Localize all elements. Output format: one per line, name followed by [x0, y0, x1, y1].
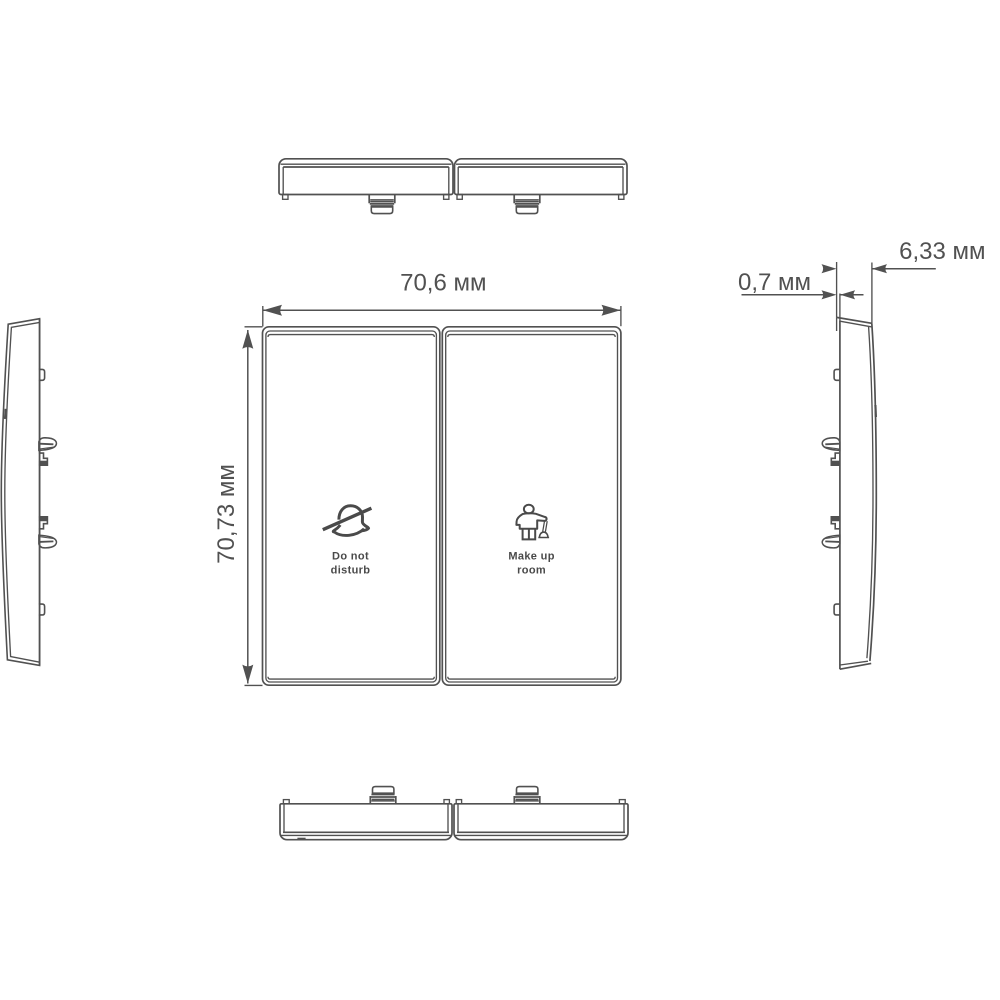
svg-text:6,33 мм: 6,33 мм — [899, 238, 985, 265]
svg-text:Do not: Do not — [332, 550, 369, 562]
svg-text:disturb: disturb — [331, 565, 371, 577]
svg-text:room: room — [517, 565, 546, 577]
svg-text:Make up: Make up — [508, 550, 554, 562]
svg-text:70,6 мм: 70,6 мм — [400, 270, 486, 297]
svg-text:0,7 мм: 0,7 мм — [738, 269, 811, 296]
svg-text:70,73 мм: 70,73 мм — [213, 464, 240, 564]
